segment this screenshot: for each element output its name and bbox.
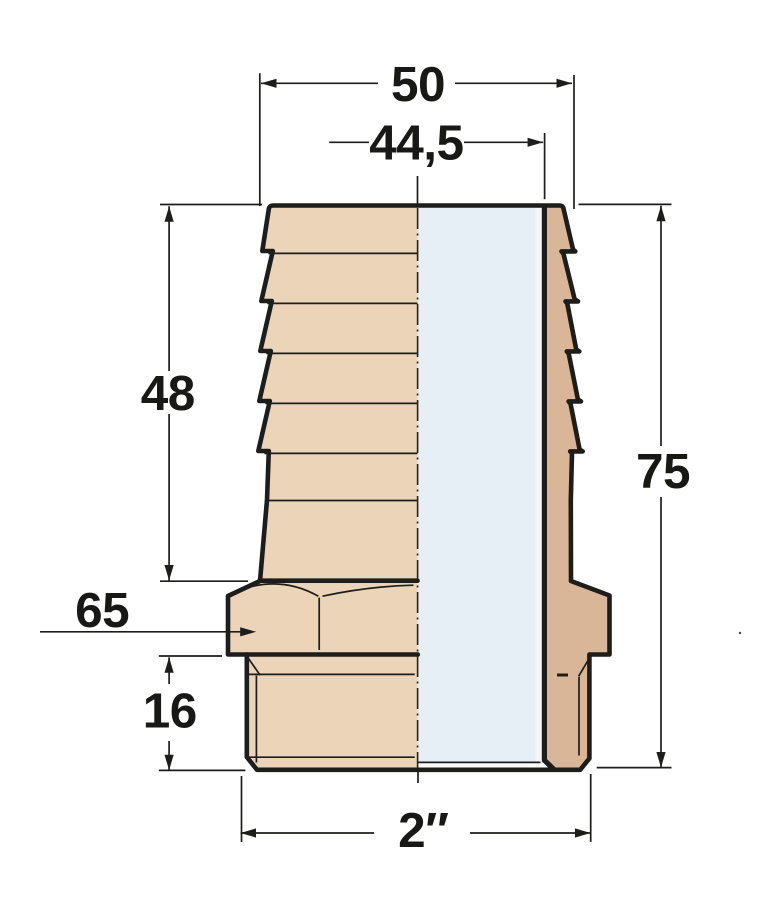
svg-text:2″: 2″ <box>398 803 448 858</box>
svg-text:48: 48 <box>141 366 195 421</box>
svg-text:50: 50 <box>391 57 445 112</box>
svg-text:16: 16 <box>143 684 197 739</box>
svg-text:65: 65 <box>75 583 129 638</box>
svg-text:44,5: 44,5 <box>369 115 463 170</box>
svg-text:75: 75 <box>636 444 690 499</box>
